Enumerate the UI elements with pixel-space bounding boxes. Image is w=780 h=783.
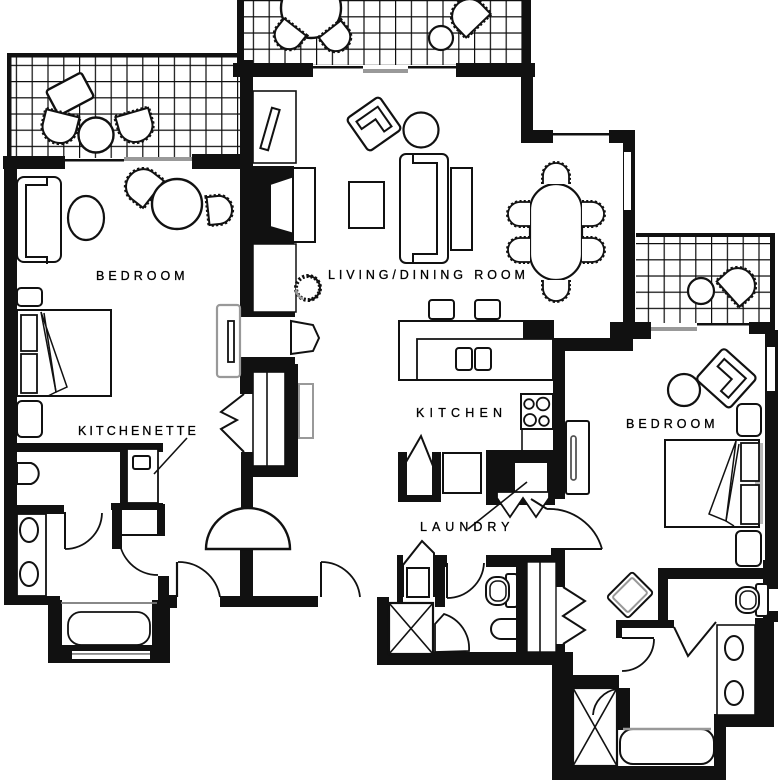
svg-text:BEDROOM: BEDROOM — [626, 417, 719, 431]
svg-text:KITCHENETTE: KITCHENETTE — [78, 424, 199, 438]
svg-text:BEDROOM: BEDROOM — [96, 269, 189, 283]
svg-text:KITCHEN: KITCHEN — [416, 406, 507, 420]
svg-text:LAUNDRY: LAUNDRY — [420, 520, 515, 534]
svg-text:LIVING/DINING ROOM: LIVING/DINING ROOM — [328, 268, 529, 282]
